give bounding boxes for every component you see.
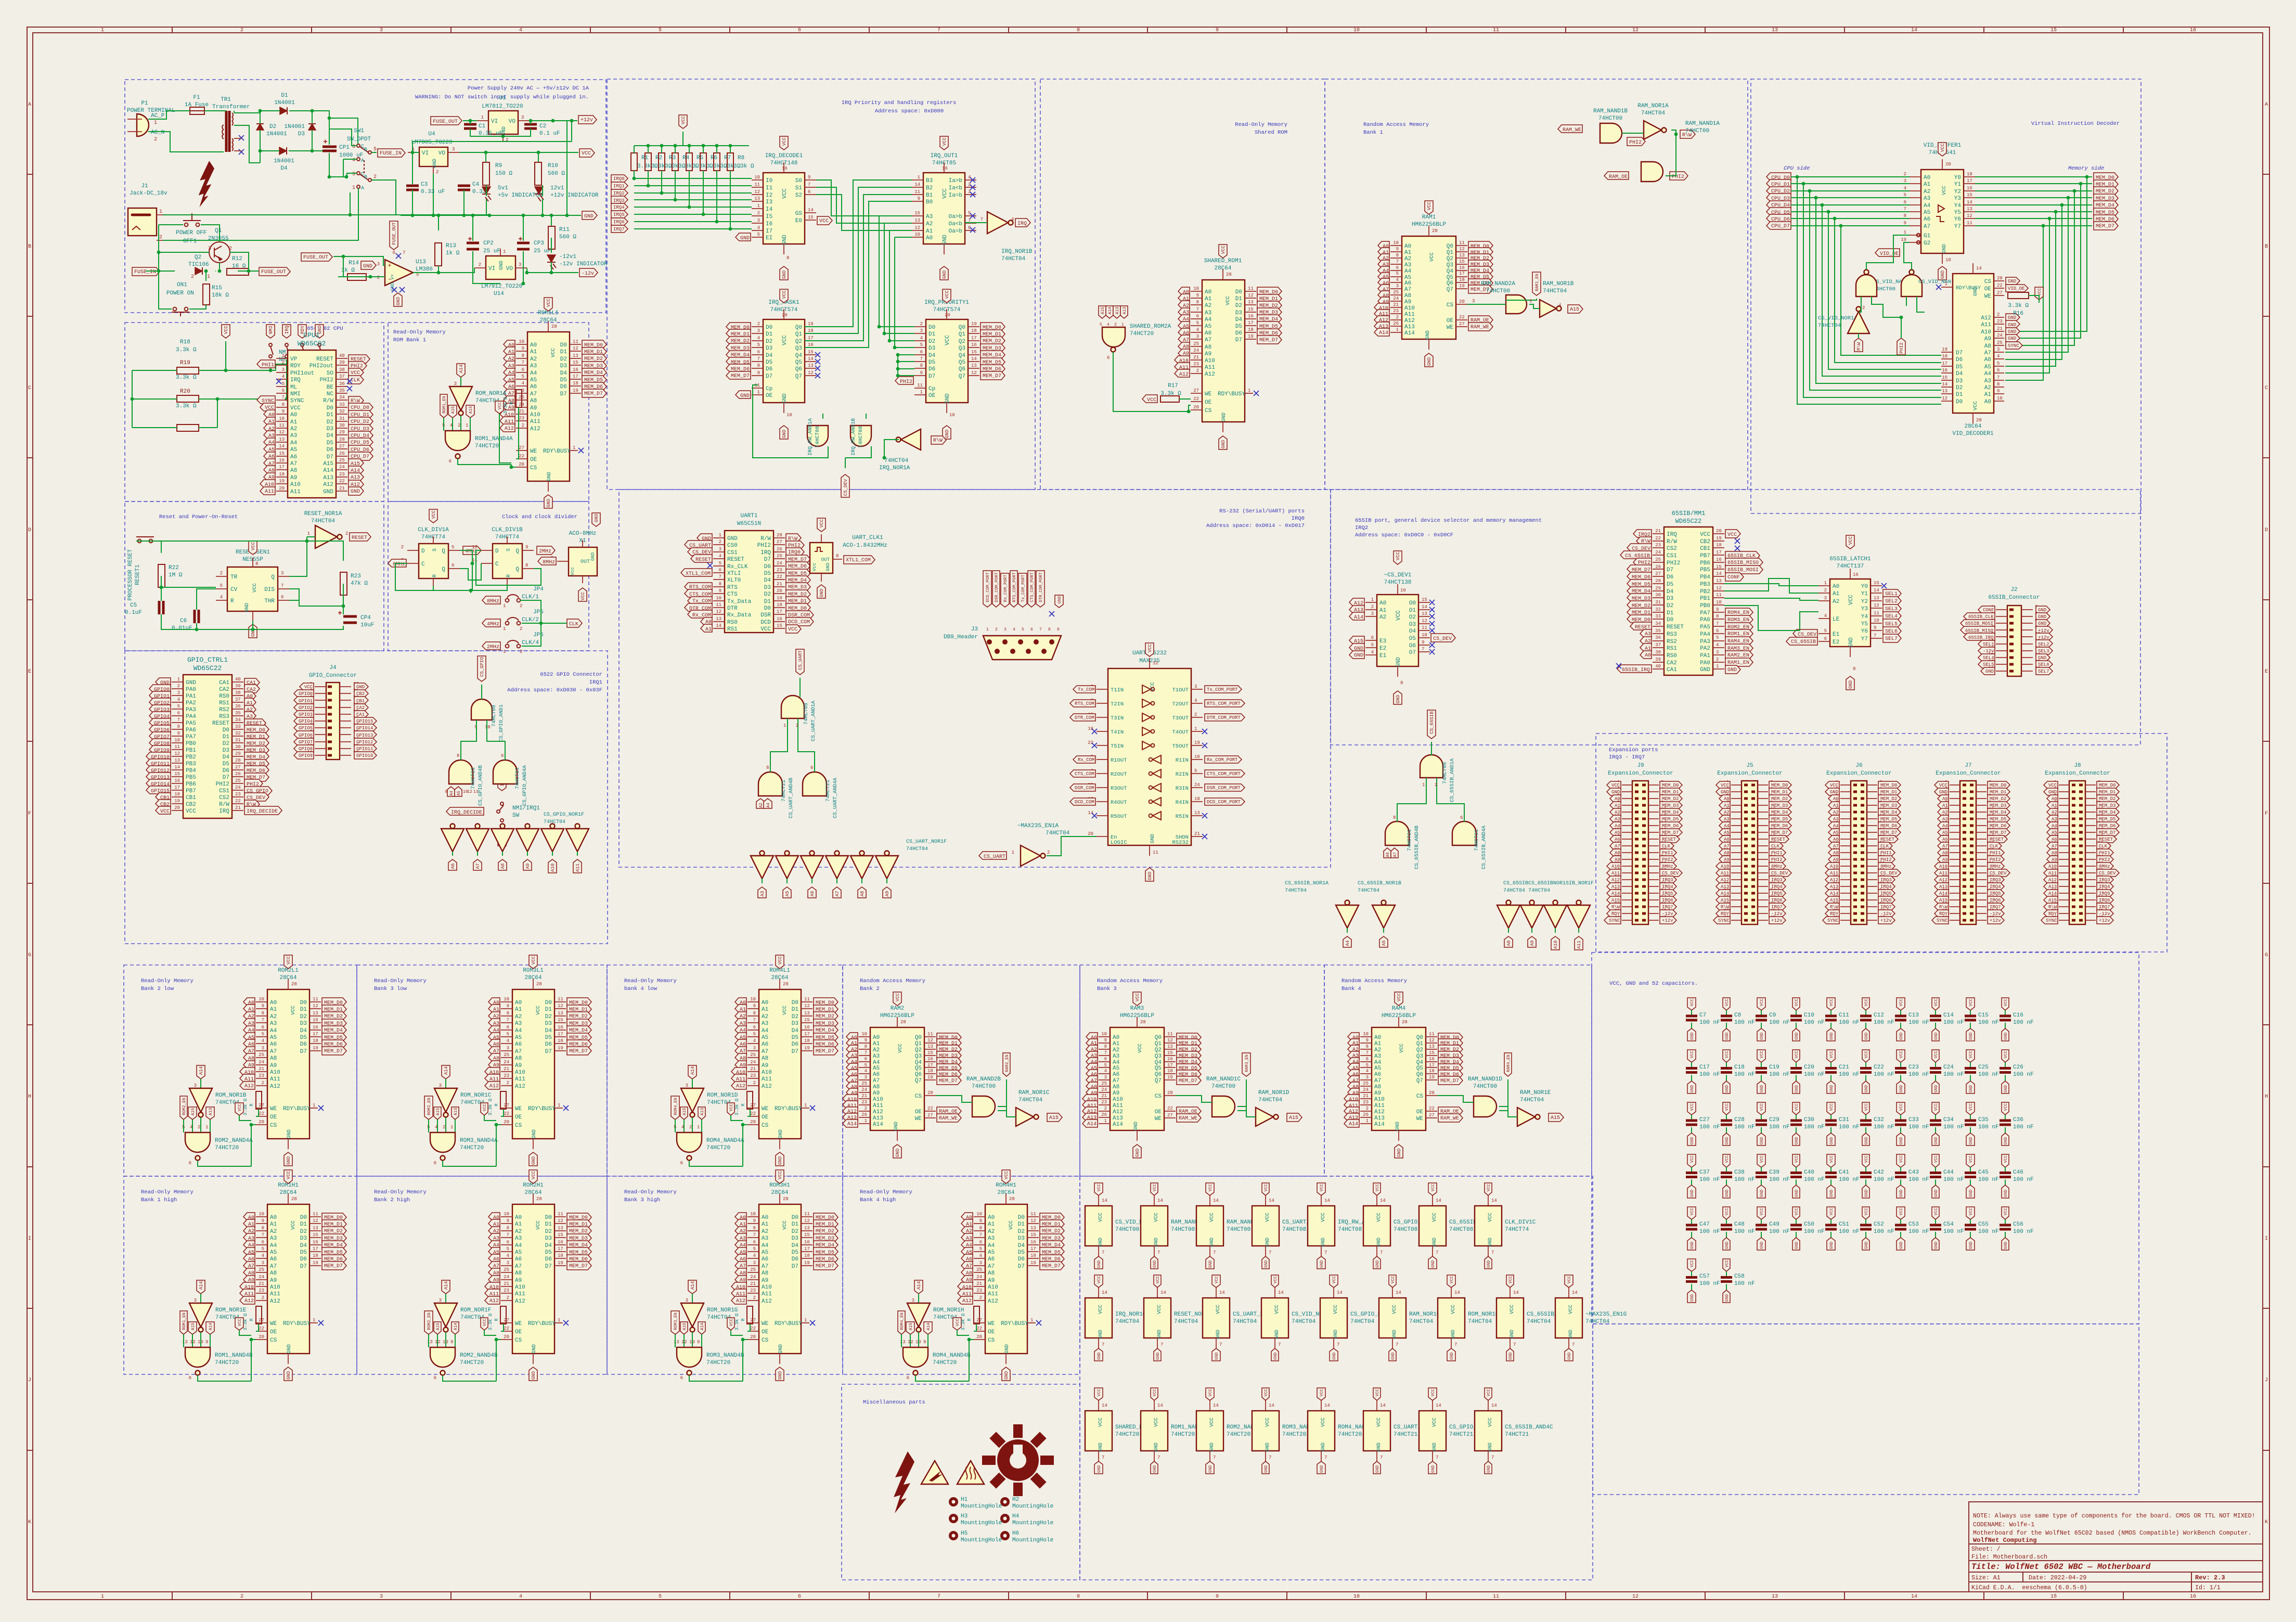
svg-text:24: 24 [750,1275,756,1280]
svg-text:74HCT08: 74HCT08 [1449,1227,1473,1233]
svg-text:A5: A5 [1382,941,1387,946]
svg-text:1: 1 [1422,782,1425,788]
svg-text:C40: C40 [1804,1169,1814,1176]
svg-text:100 nF: 100 nF [1699,1020,1720,1026]
svg-text:18: 18 [573,381,578,386]
svg-text:A4: A4 [762,1243,769,1249]
svg-text:VCC: VCC [186,808,196,815]
svg-text:A5: A5 [270,1250,277,1256]
svg-text:C20: C20 [1804,1064,1814,1071]
svg-text:74HCT04: 74HCT04 [1233,1319,1257,1325]
svg-text:R23: R23 [351,573,361,580]
svg-text:74HCT04: 74HCT04 [1115,1319,1140,1325]
svg-text:A8: A8 [290,468,297,474]
svg-text:I3: I3 [766,199,772,205]
svg-text:O6: O6 [1409,643,1416,649]
svg-text:RAM4: RAM4 [1392,1006,1406,1012]
svg-text:OE: OE [515,1329,522,1335]
svg-text:CS_GPIO_AND1: CS_GPIO_AND1 [499,704,505,742]
svg-text:A11: A11 [988,1291,998,1297]
svg-text:19: 19 [313,1046,318,1051]
svg-text:24: 24 [750,1060,756,1065]
svg-text:A11: A11 [1113,1103,1123,1109]
svg-text:12: 12 [313,1218,318,1224]
svg-text:C2: C2 [539,123,546,130]
svg-text:CS: CS [988,1337,995,1344]
svg-text:F: F [28,811,31,817]
svg-text:0.1 uF: 0.1 uF [539,131,560,137]
svg-text:SHARED_ROM2A: SHARED_ROM2A [1130,324,1171,330]
svg-text:VCC: VCC [1487,1184,1491,1192]
svg-text:CS_UART: CS_UART [798,650,803,670]
svg-text:11: 11 [1874,611,1879,616]
svg-text:23: 23 [1363,1100,1369,1105]
svg-text:A13: A13 [1374,1115,1385,1122]
svg-text:1: 1 [920,390,923,395]
svg-text:ROM3_EN: ROM3_EN [427,1098,432,1115]
svg-text:C12: C12 [1874,1012,1884,1019]
svg-text:D3: D3 [298,131,305,137]
svg-text:5: 5 [1904,192,1906,198]
svg-text:D0: D0 [300,1000,307,1006]
svg-text:RAM_NAND1D: RAM_NAND1D [1468,1076,1502,1083]
svg-text:8: 8 [1104,1044,1107,1049]
svg-text:VCC: VCC [1899,999,1904,1007]
svg-text:VCC: VCC [1097,1389,1102,1397]
svg-text:UART_CLK1: UART_CLK1 [852,535,883,541]
svg-text:4: 4 [865,1069,867,1074]
svg-text:17: 17 [804,1246,810,1252]
svg-text:Q6: Q6 [959,366,965,372]
svg-text:17: 17 [1716,550,1722,555]
svg-text:C1: C1 [479,123,486,130]
svg-text:SEL7: SEL7 [2038,669,2049,674]
svg-text:Q1: Q1 [1155,1041,1162,1047]
svg-text:A: A [2265,102,2268,108]
svg-text:9: 9 [262,1003,264,1009]
svg-text:A0: A0 [988,1215,995,1221]
svg-text:D6: D6 [1018,1256,1025,1263]
svg-text:5: 5 [220,583,223,588]
svg-text:12: 12 [1874,603,1879,608]
svg-text:15: 15 [573,360,578,365]
svg-text:MEM_D1: MEM_D1 [1771,790,1788,795]
svg-text:TIC106: TIC106 [188,262,209,268]
svg-text:VCC: VCC [1725,1051,1730,1059]
svg-text:VID_OE: VID_OE [2008,286,2024,291]
svg-text:IRQ_NOR1B: IRQ_NOR1B [1001,249,1033,255]
svg-text:VCC: VCC [224,325,229,334]
svg-text:H: H [28,1094,31,1100]
svg-text:CS: CS [1416,1093,1424,1100]
svg-text:5: 5 [753,1246,756,1252]
svg-text:9: 9 [1216,1594,1219,1600]
svg-text:5: 5 [1196,320,1199,326]
svg-text:D4: D4 [792,1243,799,1249]
svg-text:9: 9 [525,545,528,550]
svg-text:74HCT04: 74HCT04 [1468,1319,1492,1325]
svg-text:74HCT04: 74HCT04 [1174,1319,1198,1325]
svg-text:CA2: CA2 [1667,660,1677,666]
svg-text:CS1: CS1 [219,788,229,794]
svg-text:23: 23 [1193,362,1199,367]
svg-text:12: 12 [808,370,814,376]
svg-text:MountingHole: MountingHole [961,1503,1002,1510]
svg-text:GND: GND [740,236,750,241]
svg-text:C38: C38 [1734,1169,1745,1176]
svg-text:23: 23 [339,472,345,477]
svg-text:GND: GND [2004,1190,2008,1198]
svg-text:A5: A5 [1374,1065,1381,1072]
svg-text:14: 14 [174,765,180,770]
svg-text:A14: A14 [199,1281,204,1290]
svg-text:22: 22 [519,454,524,459]
svg-text:A8: A8 [515,1270,522,1277]
svg-text:1: 1 [205,1125,208,1130]
svg-text:26: 26 [1393,321,1399,326]
svg-text:17: 17 [1459,271,1465,276]
svg-text:8: 8 [507,1011,509,1016]
svg-text:CS0: CS0 [727,543,738,549]
svg-text:IRQ_RW_AND1A: IRQ_RW_AND1A [808,418,814,456]
svg-text:100 nF: 100 nF [1874,1124,1894,1130]
svg-text:WE: WE [988,1321,995,1327]
svg-text:2MHz: 2MHz [539,549,551,555]
svg-text:O7: O7 [1409,650,1416,656]
svg-text:WE: WE [1155,1116,1162,1122]
svg-text:2: 2 [1104,1106,1107,1111]
svg-text:A10: A10 [1113,1097,1123,1103]
svg-text:GND: GND [1427,357,1432,366]
svg-text:16: 16 [1459,265,1465,271]
svg-text:A1: A1 [1379,608,1387,614]
svg-text:A4: A4 [530,370,537,377]
svg-text:D2: D2 [928,339,935,345]
svg-text:A1: A1 [530,349,537,355]
svg-text:100 nF: 100 nF [1943,1124,1964,1130]
svg-text:A7: A7 [475,864,481,869]
svg-text:WE: WE [515,1106,522,1112]
svg-text:3: 3 [1194,684,1197,689]
svg-text:R3OUT: R3OUT [1111,786,1127,792]
svg-text:VCC: VCC [1690,999,1695,1007]
svg-text:7: 7 [1213,1455,1216,1460]
svg-text:R9: R9 [495,163,502,169]
svg-text:GND: GND [945,393,951,404]
svg-text:A3: A3 [1404,262,1411,268]
svg-text:11: 11 [1429,1032,1435,1037]
svg-text:8: 8 [507,1226,509,1231]
svg-text:16: 16 [808,342,814,347]
svg-text:100 nF: 100 nF [1734,1229,1755,1235]
svg-text:Bank 2: Bank 2 [860,986,880,992]
svg-text:C34: C34 [1943,1117,1954,1123]
svg-text:A3: A3 [760,891,765,897]
svg-text:24: 24 [1101,1087,1107,1092]
svg-text:GND: GND [1829,1137,1834,1145]
svg-text:100 nF: 100 nF [2013,1177,2034,1183]
svg-text:VCC: VCC [1273,1276,1278,1284]
svg-text:Q0: Q0 [795,325,802,331]
svg-text:11: 11 [279,423,285,428]
svg-text:VCC: VCC [1848,536,1853,545]
svg-text:D: D [421,548,425,555]
svg-text:14: 14 [716,623,721,628]
svg-text:RTS: RTS [727,585,738,591]
svg-text:74HCT08: 74HCT08 [492,705,497,727]
svg-text:7: 7 [281,583,283,588]
svg-text:A3: A3 [1205,310,1211,316]
svg-text:C45: C45 [1978,1169,1989,1176]
svg-text:25: 25 [1363,1081,1369,1086]
svg-text:A1: A1 [515,1007,522,1013]
svg-text:VCC, GND and 52 capacitors.: VCC, GND and 52 capacitors. [1609,981,1698,987]
svg-text:22: 22 [1997,283,2003,288]
svg-text:1: 1 [1030,1318,1033,1323]
svg-text:R: R [249,1103,254,1106]
svg-text:D6: D6 [300,1256,307,1263]
svg-text:A3: A3 [270,1235,277,1242]
svg-text:22: 22 [339,479,345,484]
svg-text:SYNC: SYNC [1827,918,1839,923]
svg-text:GND: GND [1332,1353,1337,1360]
svg-text:O2: O2 [1409,614,1416,621]
svg-text:D4: D4 [545,1028,552,1034]
svg-text:VCC: VCC [1864,999,1869,1007]
svg-text:PA1: PA1 [186,693,196,700]
svg-text:F: F [2265,811,2268,817]
svg-text:6: 6 [1104,1057,1107,1062]
svg-text:GND: GND [2004,1033,2008,1040]
svg-text:3.3k Ω: 3.3k Ω [176,347,197,353]
svg-text:XTL1_COM: XTL1_COM [686,571,711,577]
svg-text:PA1: PA1 [1700,653,1710,659]
svg-text:R16: R16 [2013,311,2023,317]
svg-text:A10: A10 [530,412,540,418]
svg-text:13: 13 [674,1340,679,1345]
svg-text:13: 13 [914,218,920,223]
svg-text:13: 13 [313,1226,318,1231]
svg-text:IRQ_DECIDE: IRQ_DECIDE [451,810,482,816]
svg-text:74HCT20: 74HCT20 [1282,1432,1306,1438]
svg-text:RAM_NOR1A: RAM_NOR1A [1637,103,1669,109]
svg-text:3: 3 [439,1298,442,1303]
svg-text:7: 7 [1104,1050,1107,1055]
svg-text:ACO-8MHz: ACO-8MHz [569,531,597,537]
svg-text:A14: A14 [917,1281,922,1290]
svg-text:R5IN: R5IN [1176,814,1189,820]
svg-text:D0: D0 [1667,617,1673,623]
svg-text:VCC: VCC [291,1006,296,1015]
svg-text:B: B [2265,244,2268,250]
svg-text:A5: A5 [290,447,297,453]
svg-text:E1: E1 [1379,653,1387,659]
svg-text:Bank 2 high: Bank 2 high [374,1197,410,1203]
svg-text:5: 5 [1104,1063,1107,1068]
svg-text:GND: GND [945,430,950,438]
svg-text:2: 2 [1997,312,2000,317]
svg-text:13: 13 [182,1340,188,1345]
svg-text:74HCT04: 74HCT04 [1258,1097,1283,1103]
svg-text:A12: A12 [270,1298,280,1305]
svg-text:15: 15 [1429,1050,1435,1055]
svg-text:A2: A2 [759,803,764,808]
svg-text:14: 14 [1102,1198,1107,1203]
svg-text:74HCT04: 74HCT04 [1520,1097,1544,1103]
svg-text:+5v INDICATOR: +5v INDICATOR [498,192,543,199]
svg-text:A14: A14 [1379,330,1388,336]
svg-text:Size: A1: Size: A1 [1971,1575,2001,1581]
svg-text:OE: OE [915,1109,922,1115]
svg-text:12: 12 [1429,1038,1435,1043]
svg-text:20: 20 [1193,405,1199,410]
svg-text:1: 1 [1945,281,1947,287]
svg-text:5: 5 [262,1246,264,1252]
svg-text:Expansion ports: Expansion ports [1609,747,1658,753]
svg-text:15: 15 [1874,581,1879,586]
svg-text:14: 14 [1269,1403,1274,1408]
svg-text:25: 25 [777,553,782,559]
svg-text:VCC: VCC [1795,1155,1799,1163]
svg-text:14: 14 [1874,588,1879,593]
svg-text:ROM_NOR1H: ROM_NOR1H [933,1307,964,1314]
svg-text:J9: J9 [1637,763,1644,769]
svg-text:CP1: CP1 [339,145,350,151]
svg-text:A12: A12 [244,1298,254,1304]
svg-text:D0: D0 [1018,1215,1025,1221]
svg-text:GND: GND [727,536,738,542]
svg-text:D4: D4 [1956,371,1963,377]
svg-text:8: 8 [753,1011,756,1016]
svg-text:D3: D3 [928,345,935,352]
svg-text:VCC: VCC [1864,1051,1869,1059]
svg-text:U4: U4 [428,131,435,137]
svg-text:OE: OE [1205,400,1212,406]
svg-text:D1: D1 [281,93,288,99]
svg-text:VCC: VCC [1940,143,1945,152]
svg-text:7: 7 [1380,1455,1383,1460]
svg-text:MEM_D7: MEM_D7 [584,391,603,397]
svg-text:100 nF: 100 nF [1734,1072,1755,1078]
svg-text:D1: D1 [223,734,230,740]
svg-text:A6: A6 [515,1256,522,1263]
svg-text:GND: GND [1488,1443,1493,1452]
svg-text:GPIO11: GPIO11 [356,746,373,752]
svg-text:17: 17 [1030,1246,1036,1252]
svg-text:3: 3 [507,1046,509,1051]
svg-text:VCC: VCC [760,626,771,633]
svg-text:RAM_NOR1G: RAM_NOR1G [1409,1311,1440,1318]
svg-text:27: 27 [1655,571,1661,576]
svg-text:Q: Q [271,574,275,581]
svg-text:SEL7: SEL7 [1885,636,1898,642]
svg-text:10: 10 [1353,1594,1360,1600]
svg-text:0.1uF: 0.1uF [125,610,142,616]
svg-text:A8: A8 [530,398,537,404]
svg-text:OE: OE [270,1329,277,1335]
svg-text:MEM_D0: MEM_D0 [1771,783,1788,788]
svg-text:1: 1 [101,1594,104,1600]
svg-text:A12: A12 [1179,372,1189,378]
svg-text:G: G [28,952,31,958]
svg-text:D1: D1 [1235,296,1243,302]
svg-text:25: 25 [750,1267,756,1272]
svg-text:A7: A7 [873,1078,880,1084]
svg-text:D1: D1 [560,349,567,355]
svg-text:74HCT08: 74HCT08 [1282,1227,1306,1233]
svg-text:PB0: PB0 [186,741,196,747]
svg-text:24: 24 [259,1275,264,1280]
svg-text:GND: GND [2008,279,2016,284]
svg-text:ROM1_NAND4B: ROM1_NAND4B [215,1353,253,1359]
svg-text:OE: OE [762,1329,769,1335]
svg-text:Oa>b: Oa>b [949,214,962,220]
svg-text:E1: E1 [1833,632,1840,638]
svg-text:7: 7 [753,1018,756,1023]
svg-text:30: 30 [235,744,241,750]
svg-text:14: 14 [1213,1403,1219,1408]
svg-text:14: 14 [1102,1290,1107,1295]
svg-text:VCC: VCC [1451,1305,1456,1314]
svg-text:A4: A4 [290,440,298,446]
svg-text:6: 6 [1904,200,1906,205]
svg-text:13: 13 [1874,596,1879,601]
svg-text:4: 4 [719,553,721,559]
svg-text:GND: GND [1487,1260,1491,1268]
svg-text:CS1: CS1 [727,550,738,556]
svg-text:ROM4_NAND4B: ROM4_NAND4B [933,1353,971,1359]
svg-text:GND: GND [1147,872,1153,880]
svg-text:3: 3 [753,1260,756,1266]
svg-text:74HCT21: 74HCT21 [1394,1432,1418,1438]
svg-text:A3: A3 [988,1235,995,1242]
svg-text:1: 1 [1716,664,1719,669]
svg-text:VCC: VCC [1725,1103,1730,1111]
svg-text:MEM_D2: MEM_D2 [1880,796,1897,802]
svg-text:Read-Only Memory: Read-Only Memory [624,978,677,984]
svg-text:VCC: VCC [498,402,502,410]
svg-text:IRQ Priority and handling regi: IRQ Priority and handling registers [842,100,957,106]
svg-text:D2: D2 [792,1229,798,1235]
svg-text:16: 16 [782,166,788,171]
svg-text:IRQ6: IRQ6 [613,220,625,225]
svg-text:3: 3 [452,147,455,152]
svg-text:T4OUT: T4OUT [1172,729,1189,736]
svg-text:13: 13 [1194,810,1200,816]
svg-text:RTS_COM_PORT: RTS_COM_PORT [1207,701,1241,706]
svg-text:11: 11 [1459,240,1465,246]
svg-text:-12v: -12v [582,271,594,277]
svg-text:C16: C16 [2013,1012,2023,1019]
svg-text:20: 20 [782,313,788,318]
svg-text:3: 3 [719,547,721,552]
svg-text:1k Ω: 1k Ω [446,250,460,256]
svg-text:RAM_WE: RAM_WE [1440,1116,1459,1122]
svg-text:ROM4_EN: ROM4_EN [674,1098,678,1115]
svg-text:CS: CS [270,1123,277,1129]
svg-text:GND: GND [778,1371,783,1380]
svg-text:A6: A6 [270,1256,277,1263]
svg-text:D0: D0 [792,1000,798,1006]
svg-text:WE: WE [1984,293,1992,300]
svg-text:GPIO13: GPIO13 [356,733,373,738]
svg-text:6: 6 [1997,368,2000,373]
svg-text:100 nF: 100 nF [1943,1229,1964,1235]
svg-text:20: 20 [519,462,524,467]
svg-text:RS1: RS1 [727,626,738,633]
svg-text:A1: A1 [1984,392,1992,398]
svg-text:4: 4 [352,158,355,163]
